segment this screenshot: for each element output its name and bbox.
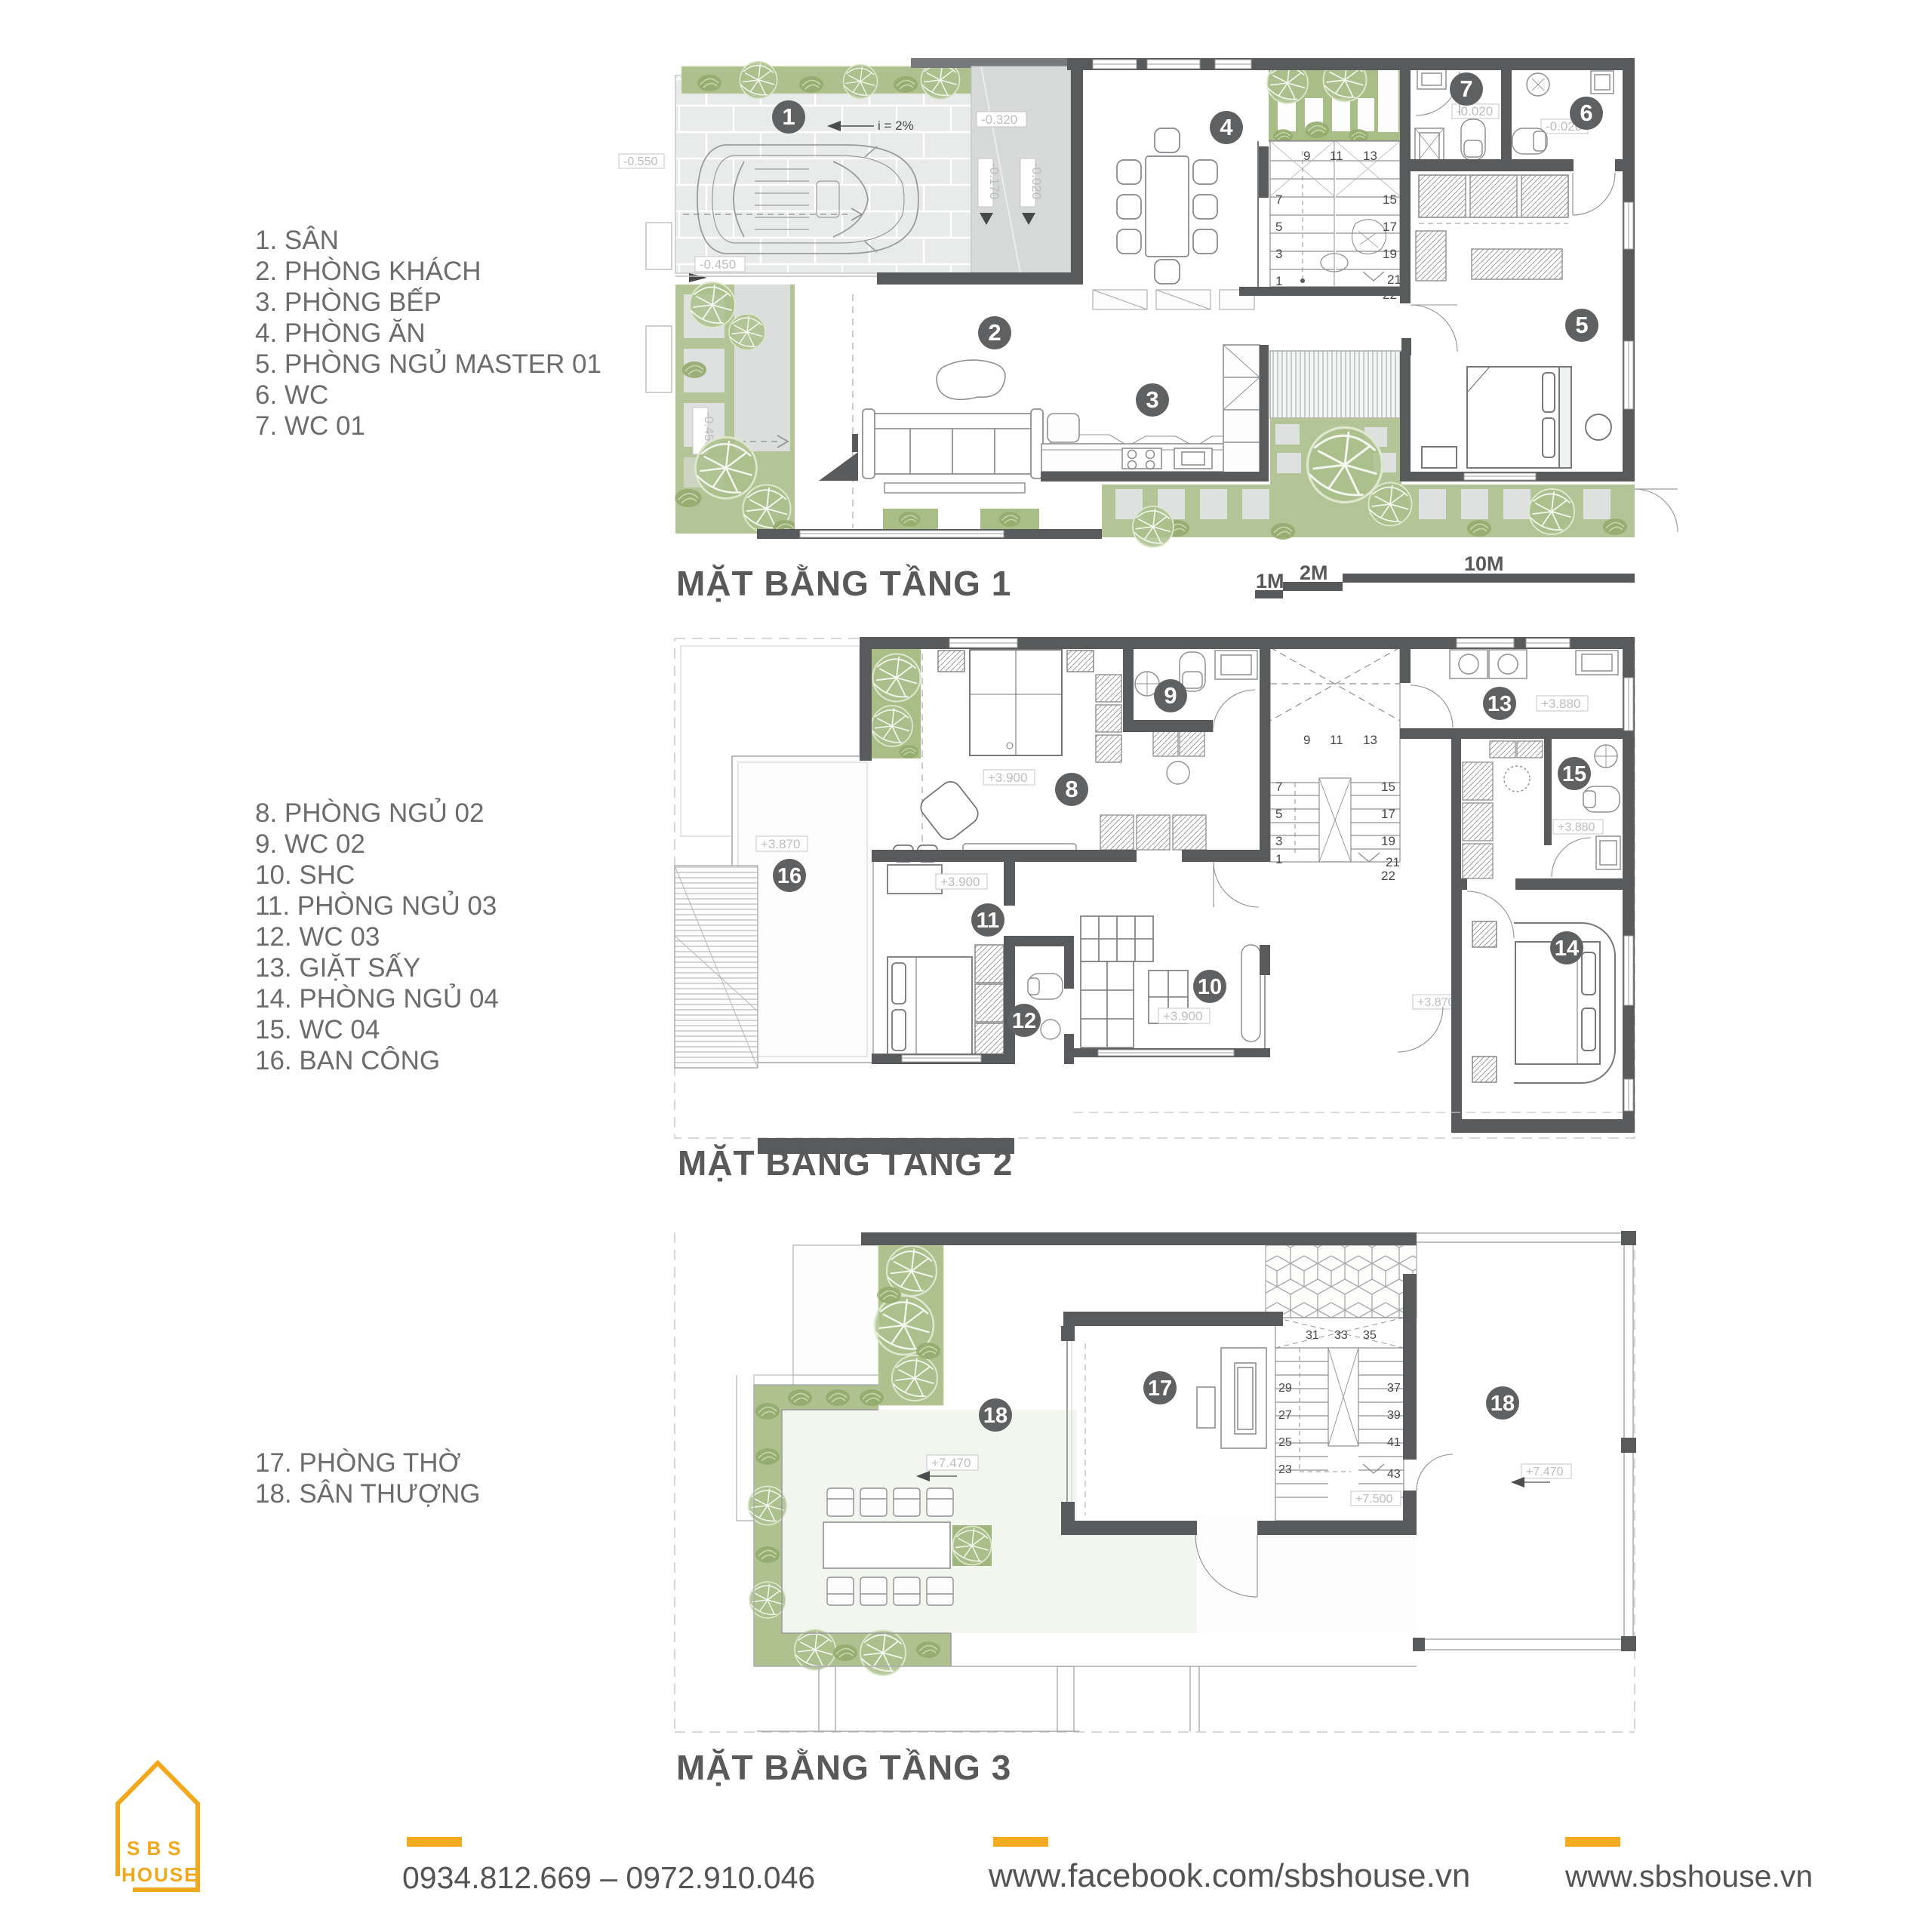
svg-text:-0.170: -0.170 [987, 163, 1001, 199]
svg-text:+3.900: +3.900 [940, 875, 980, 889]
svg-text:15: 15 [1381, 780, 1395, 794]
svg-text:14. PHÒNG NGỦ 04: 14. PHÒNG NGỦ 04 [255, 983, 499, 1014]
svg-text:1: 1 [1275, 852, 1282, 866]
svg-text:+7.470: +7.470 [931, 1456, 971, 1470]
svg-text:21: 21 [1387, 272, 1401, 287]
svg-text:4. PHÒNG ĂN: 4. PHÒNG ĂN [255, 318, 426, 348]
svg-text:1M: 1M [1256, 570, 1284, 592]
svg-text:5: 5 [1275, 807, 1282, 821]
svg-text:17. PHÒNG THỜ: 17. PHÒNG THỜ [255, 1448, 460, 1478]
svg-text:www.facebook.com/sbshouse.vn: www.facebook.com/sbshouse.vn [988, 1857, 1470, 1894]
svg-text:3: 3 [1275, 247, 1282, 261]
svg-text:19: 19 [1381, 834, 1395, 848]
svg-text:43: 43 [1387, 1468, 1401, 1481]
svg-text:+3.870: +3.870 [761, 837, 800, 851]
svg-text:22: 22 [1381, 869, 1395, 883]
svg-text:9: 9 [1303, 733, 1310, 747]
svg-text:9. WC 02: 9. WC 02 [255, 829, 365, 859]
svg-text:18. SÂN THƯỢNG: 18. SÂN THƯỢNG [255, 1479, 481, 1509]
svg-text:MẶT BẰNG TẦNG 1: MẶT BẰNG TẦNG 1 [676, 564, 1011, 603]
svg-text:4: 4 [1220, 114, 1233, 140]
svg-text:35: 35 [1363, 1329, 1377, 1342]
svg-text:7: 7 [1275, 192, 1282, 207]
svg-text:5: 5 [1575, 312, 1588, 338]
svg-text:+3.900: +3.900 [1163, 1009, 1202, 1023]
svg-text:7. WC 01: 7. WC 01 [255, 411, 365, 441]
svg-text:5. PHÒNG NGỦ MASTER 01: 5. PHÒNG NGỦ MASTER 01 [255, 349, 601, 379]
svg-text:+7.470: +7.470 [1526, 1466, 1563, 1478]
svg-text:15: 15 [1562, 762, 1586, 786]
svg-text:9: 9 [1164, 682, 1177, 709]
svg-text:11: 11 [1330, 149, 1343, 163]
svg-text:3: 3 [1275, 834, 1282, 848]
svg-text:6. WC: 6. WC [255, 380, 328, 410]
svg-text:12. WC 03: 12. WC 03 [255, 922, 380, 952]
svg-text:37: 37 [1387, 1382, 1401, 1395]
svg-text:19: 19 [1383, 247, 1397, 261]
svg-text:5: 5 [1275, 220, 1282, 234]
svg-text:10: 10 [1198, 975, 1222, 999]
svg-text:11. PHÒNG NGỦ 03: 11. PHÒNG NGỦ 03 [255, 891, 497, 921]
svg-text:+3.870: +3.870 [1417, 996, 1454, 1009]
svg-text:3. PHÒNG BẾP: 3. PHÒNG BẾP [255, 287, 441, 317]
svg-text:6: 6 [1580, 100, 1592, 126]
svg-text:3: 3 [1146, 386, 1158, 413]
svg-text:8. PHÒNG NGỦ 02: 8. PHÒNG NGỦ 02 [255, 798, 484, 828]
svg-text:2. PHÒNG KHÁCH: 2. PHÒNG KHÁCH [255, 257, 481, 286]
svg-text:16. BAN CÔNG: 16. BAN CÔNG [255, 1046, 440, 1075]
svg-text:13: 13 [1487, 692, 1512, 716]
svg-text:41: 41 [1387, 1436, 1401, 1449]
svg-text:25: 25 [1278, 1436, 1292, 1449]
svg-text:SBS: SBS [127, 1837, 187, 1860]
svg-text:+3.900: +3.900 [988, 771, 1027, 785]
svg-text:+3.880: +3.880 [1558, 821, 1595, 834]
svg-text:www.sbshouse.vn: www.sbshouse.vn [1564, 1859, 1813, 1894]
svg-text:1. SÂN: 1. SÂN [255, 226, 339, 255]
svg-text:+7.500: +7.500 [1355, 1493, 1392, 1506]
svg-text:9: 9 [1303, 149, 1310, 163]
svg-text:39: 39 [1387, 1409, 1401, 1422]
svg-text:14: 14 [1555, 937, 1579, 961]
svg-text:+3.880: +3.880 [1541, 697, 1580, 711]
svg-text:-0.020: -0.020 [1029, 163, 1044, 199]
svg-text:0934.812.669 – 0972.910.046: 0934.812.669 – 0972.910.046 [402, 1860, 815, 1895]
svg-text:i = 2%: i = 2% [878, 118, 914, 133]
svg-text:11: 11 [977, 909, 1000, 933]
svg-text:29: 29 [1278, 1382, 1292, 1395]
svg-text:-0.550: -0.550 [623, 155, 657, 168]
svg-text:33: 33 [1334, 1329, 1348, 1342]
svg-text:1: 1 [782, 103, 795, 130]
svg-text:7: 7 [1460, 75, 1472, 102]
svg-text:MẶT BẰNG TẦNG 3: MẶT BẰNG TẦNG 3 [676, 1748, 1011, 1787]
svg-text:12: 12 [1012, 1009, 1036, 1033]
svg-text:16: 16 [777, 864, 801, 888]
svg-text:21: 21 [1386, 855, 1400, 869]
svg-text:17: 17 [1148, 1377, 1172, 1401]
svg-text:2M: 2M [1300, 561, 1328, 584]
svg-text:HOUSE: HOUSE [122, 1863, 198, 1886]
svg-text:13. GIẶT SẤY: 13. GIẶT SẤY [255, 952, 420, 983]
svg-text:23: 23 [1278, 1463, 1292, 1476]
svg-text:13: 13 [1363, 733, 1377, 747]
svg-text:8: 8 [1065, 776, 1078, 802]
svg-text:27: 27 [1278, 1409, 1292, 1422]
svg-text:18: 18 [1491, 1392, 1515, 1416]
svg-text:15. WC 04: 15. WC 04 [255, 1015, 380, 1044]
svg-text:1: 1 [1275, 274, 1282, 288]
svg-text:10M: 10M [1464, 552, 1504, 575]
svg-text:7: 7 [1275, 780, 1282, 794]
svg-text:10. SHC: 10. SHC [255, 860, 355, 890]
svg-text:13: 13 [1363, 149, 1377, 163]
svg-text:11: 11 [1330, 733, 1343, 747]
svg-text:15: 15 [1383, 192, 1397, 207]
svg-text:-0.020: -0.020 [1457, 104, 1493, 118]
svg-text:MẶT BẰNG TẦNG 2: MẶT BẰNG TẦNG 2 [678, 1143, 1013, 1183]
svg-text:-0.320: -0.320 [981, 112, 1017, 127]
svg-text:17: 17 [1381, 807, 1395, 821]
svg-text:-0.450: -0.450 [700, 257, 736, 272]
svg-text:18: 18 [983, 1404, 1008, 1428]
svg-text:31: 31 [1306, 1329, 1319, 1342]
svg-text:2: 2 [988, 319, 1001, 346]
svg-text:17: 17 [1383, 220, 1397, 234]
